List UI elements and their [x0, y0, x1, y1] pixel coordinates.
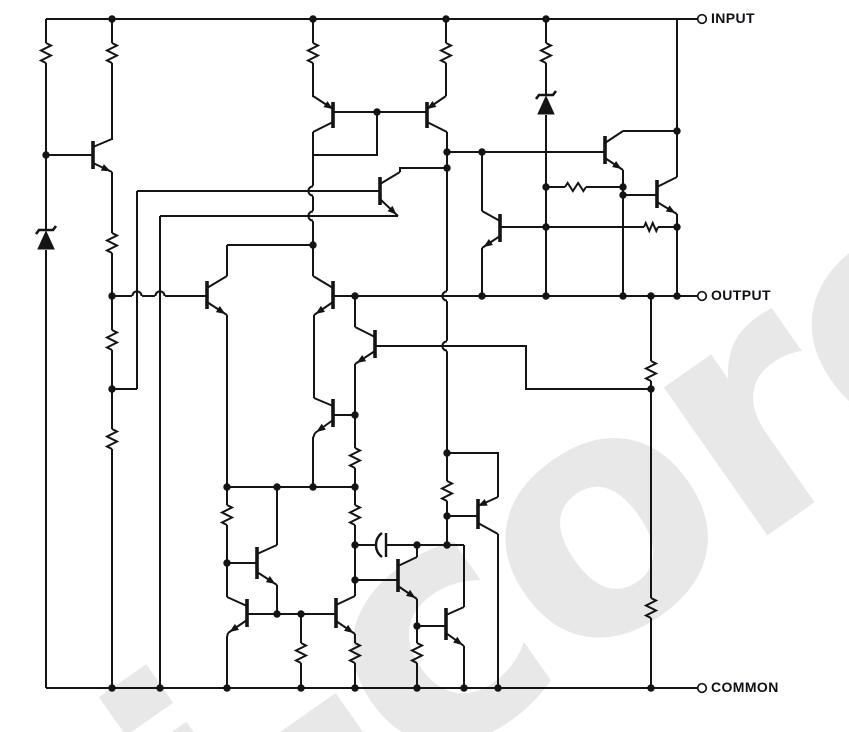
junction-dot [542, 15, 549, 22]
output-terminal-label: OUTPUT [711, 287, 771, 303]
wire [400, 168, 447, 172]
transistor-collector [398, 557, 417, 566]
schematic-page: i-core INPUT OUTPUT COMMON [0, 0, 849, 732]
transistor-collector [313, 276, 333, 288]
resistor-icon [441, 43, 451, 63]
wire [227, 633, 228, 688]
input-terminal-icon [698, 15, 707, 24]
transistor-collector [427, 122, 447, 132]
regulator-schematic-canvas [0, 0, 849, 732]
junction-dot [351, 576, 358, 583]
transistor-collector [380, 172, 400, 184]
junction-dot [351, 483, 358, 490]
transistor-collector [605, 131, 623, 143]
wire [313, 433, 315, 487]
wire [447, 453, 498, 497]
junction-dot [673, 292, 680, 299]
transistor-collector [314, 398, 333, 406]
transistor-emitter-arrow [483, 239, 492, 247]
transistor-collector [355, 327, 375, 337]
junction-dot [273, 610, 280, 617]
transistor-collector [207, 276, 227, 288]
resistor-icon [646, 598, 656, 618]
resistor-icon [308, 43, 318, 63]
junction-dot [223, 684, 230, 691]
resistor-icon [222, 505, 232, 525]
junction-dot [619, 292, 626, 299]
resistor-icon [107, 330, 117, 350]
junction-dot [108, 684, 115, 691]
junction-dot [542, 223, 549, 230]
transistor-emitter-arrow [266, 576, 276, 584]
junction-dot [297, 610, 304, 617]
junction-dot [647, 292, 654, 299]
wire [313, 112, 377, 155]
junction-dot [373, 108, 380, 115]
junction-dot [478, 292, 485, 299]
junction-dot [619, 191, 626, 198]
junction-dot [309, 483, 316, 490]
junction-dot [443, 541, 450, 548]
transistor-emitter-arrow [344, 625, 353, 633]
resistor-icon [442, 481, 452, 501]
zener-diode-icon [38, 232, 54, 250]
resistor-icon [412, 643, 422, 663]
resistor-icon [565, 183, 586, 191]
junction-dot [351, 684, 358, 691]
junction-dot [351, 292, 358, 299]
junction-dot [673, 223, 680, 230]
junction-dot [442, 15, 449, 22]
transistor-collector [227, 597, 247, 606]
junction-dot [478, 148, 485, 155]
output-terminal-icon [698, 292, 707, 301]
junction-dot [443, 148, 450, 155]
capacitor-icon [376, 533, 382, 557]
resistor-icon [41, 43, 51, 63]
junction-dot [542, 183, 549, 190]
junction-dot [647, 385, 654, 392]
resistor-icon [350, 505, 360, 525]
junction-dot [156, 684, 163, 691]
junction-dot [273, 483, 280, 490]
resistor-icon [107, 429, 117, 449]
junction-dot [108, 15, 115, 22]
transistor-collector [336, 596, 355, 605]
transistor-emitter-arrow [666, 205, 676, 213]
junction-dot [443, 449, 450, 456]
transistor-collector [482, 211, 500, 221]
junction-dot [42, 151, 49, 158]
wire [375, 346, 651, 389]
junction-dot [443, 512, 450, 519]
resistor-icon [350, 448, 360, 468]
junction-dot [108, 292, 115, 299]
junction-dot [351, 411, 358, 418]
transistor-collector [313, 122, 333, 132]
junction-dot [297, 684, 304, 691]
junction-dot [108, 385, 115, 392]
resistor-icon [644, 223, 658, 231]
junction-dot [494, 684, 501, 691]
transistor-collector [446, 607, 464, 615]
junction-dot [309, 15, 316, 22]
common-terminal-icon [698, 684, 707, 693]
transistor-collector [657, 177, 677, 187]
junction-dot [647, 684, 654, 691]
junction-dot [223, 559, 230, 566]
junction-dot [413, 541, 420, 548]
junction-dot [309, 241, 316, 248]
transistor-collector [478, 523, 498, 534]
junction-dot [673, 127, 680, 134]
transistor-emitter-arrow [406, 590, 415, 598]
junction-dot [443, 164, 450, 171]
transistor-emitter-arrow [230, 624, 239, 632]
transistor-collector [257, 545, 277, 554]
transistor-emitter-arrow [216, 306, 226, 314]
transistor-collector [93, 139, 112, 147]
transistor-emitter-arrow [612, 161, 621, 169]
junction-dot [413, 684, 420, 691]
junction-dot [542, 292, 549, 299]
transistor-emitter-arrow [101, 164, 111, 171]
junction-dot [619, 183, 626, 190]
resistor-icon [107, 233, 117, 253]
resistor-icon [541, 43, 551, 63]
resistor-icon [646, 361, 656, 381]
transistor-emitter-arrow [316, 306, 325, 314]
resistor-icon [350, 643, 360, 663]
resistor-icon [296, 643, 306, 663]
common-terminal-label: COMMON [711, 679, 779, 695]
junction-dot [460, 684, 467, 691]
zener-diode-icon [538, 97, 554, 115]
junction-dot [223, 483, 230, 490]
transistor-emitter-arrow [357, 355, 367, 363]
input-terminal-label: INPUT [711, 10, 755, 26]
junction-dot [351, 541, 358, 548]
resistor-icon [107, 43, 117, 63]
junction-dot [413, 622, 420, 629]
